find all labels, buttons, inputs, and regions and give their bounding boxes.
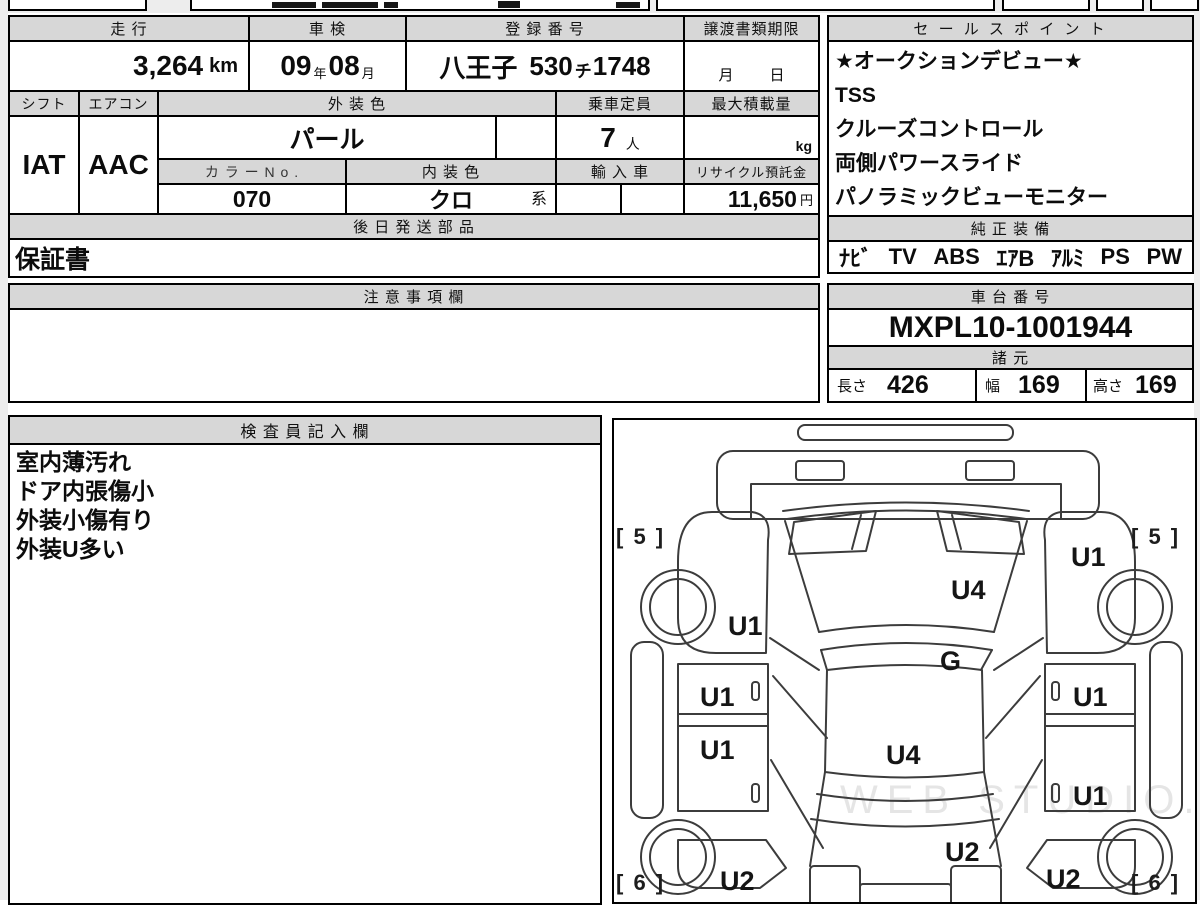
chassis-header: 車 台 番 号 xyxy=(827,283,1194,310)
deadline-day-label: 日 xyxy=(770,64,785,85)
specs-header: 諸 元 xyxy=(827,345,1194,370)
aircon-header: エアコン xyxy=(78,90,159,117)
shift-header: シフト xyxy=(8,90,80,117)
damage-mark-left-front-door: U1 xyxy=(700,684,735,711)
registration-header: 登 録 番 号 xyxy=(405,15,685,42)
chassis-value: MXPL10-1001944 xyxy=(827,308,1194,347)
recycle-deposit-number: 11,650 xyxy=(728,186,797,213)
cutoff-text-fragment xyxy=(384,2,398,8)
import-car-cell-2 xyxy=(620,183,685,215)
damage-mark-right-front-fender: U1 xyxy=(1071,544,1106,571)
interior-color-name: クロ xyxy=(429,183,473,215)
cutoff-cell xyxy=(190,0,650,11)
color-no-header: カ ラ ー N o . xyxy=(157,158,347,185)
spec-length-value: 426 xyxy=(887,371,929,400)
sales-point-box: ★オークションデビュー★ TSS クルーズコントロール 両側パワースライド パノ… xyxy=(827,40,1194,217)
damage-mark-left-rear-quarter: U2 xyxy=(720,868,755,895)
spec-width-value: 169 xyxy=(1018,371,1060,400)
sales-point-header: セ ー ル ス ポ イ ン ト xyxy=(827,15,1194,42)
cutoff-text-fragment xyxy=(322,2,378,8)
import-car-cell-1 xyxy=(555,183,622,215)
damage-mark-right-rear-quarter: U2 xyxy=(1046,866,1081,893)
notes-header: 注 意 事 項 欄 xyxy=(8,283,820,310)
corner-grade-front-left: [ 5 ] xyxy=(616,526,665,548)
equipment-item: ABS xyxy=(933,244,979,270)
damage-mark-rear-gate: U2 xyxy=(945,839,980,866)
spec-height-value: 169 xyxy=(1135,371,1177,400)
recycle-deposit-header: リサイクル預託金 xyxy=(683,158,820,185)
corner-grade-rear-right: [ 6 ] xyxy=(1131,872,1180,894)
interior-color-header: 内 装 色 xyxy=(345,158,557,185)
cutoff-cell xyxy=(8,0,147,11)
inspector-note-line: 外装U多い xyxy=(16,535,594,564)
sales-point-item: ★オークションデビュー★ xyxy=(835,45,1186,79)
sales-point-item: パノラミックビューモニター xyxy=(835,181,1186,215)
cutoff-text-fragment xyxy=(272,2,316,8)
inspection-month: 08 xyxy=(329,50,360,82)
damage-diagram: WEB STUDIO.PRO xyxy=(612,418,1197,904)
inspection-year: 09 xyxy=(280,50,311,82)
spec-height-label: 高さ xyxy=(1093,375,1123,396)
damage-mark-left-rear-door: U1 xyxy=(700,737,735,764)
registration-number: 1748 xyxy=(593,51,651,82)
spec-height: 高さ 169 xyxy=(1085,368,1194,403)
sales-point-item: TSS xyxy=(835,79,1186,113)
capacity-value: 7 人 xyxy=(555,115,685,160)
spec-width-label: 幅 xyxy=(985,375,1000,396)
cutoff-cell xyxy=(1002,0,1090,11)
inspector-note-line: ドア内張傷小 xyxy=(16,477,594,506)
max-load-unit: kg xyxy=(796,138,812,154)
damage-mark-right-rear-door: U1 xyxy=(1073,783,1108,810)
cutoff-text-fragment xyxy=(498,1,520,8)
spec-width: 幅 169 xyxy=(975,368,1087,403)
later-parts-header: 後 日 発 送 部 品 xyxy=(8,213,820,240)
damage-mark-right-front-door: U1 xyxy=(1073,684,1108,711)
exterior-color-value: パール xyxy=(157,115,497,160)
spec-length: 長さ 426 xyxy=(827,368,977,403)
exterior-color-sub-cell xyxy=(495,115,557,160)
max-load-value: kg xyxy=(683,115,820,160)
auction-sheet: { "colors": { "header_bg": "#d7d7d7", "b… xyxy=(0,0,1200,900)
deadline-month-label: 月 xyxy=(718,64,733,85)
equipment-item: PW xyxy=(1147,244,1182,270)
corner-grade-front-right: [ 5 ] xyxy=(1131,526,1180,548)
sales-point-item: クルーズコントロール xyxy=(835,113,1186,147)
damage-mark-windshield: G xyxy=(940,648,961,675)
aircon-value: AAC xyxy=(78,115,159,215)
interior-color-value: クロ 系 xyxy=(345,183,557,215)
mileage-unit: km xyxy=(209,55,238,78)
mileage-number: 3,264 xyxy=(133,50,203,82)
transfer-deadline-header: 譲渡書類期限 xyxy=(683,15,820,42)
capacity-header: 乗車定員 xyxy=(555,90,685,117)
inspector-notes-header: 検 査 員 記 入 欄 xyxy=(8,415,602,445)
left-margin xyxy=(0,0,8,900)
damage-mark-roof: U4 xyxy=(886,742,921,769)
damage-mark-hood: U4 xyxy=(951,577,986,604)
registration-kana: チ xyxy=(575,57,592,82)
equipment-item: PS xyxy=(1101,244,1130,270)
registration-value: 八王子 530 チ 1748 xyxy=(405,40,685,92)
equipment-item: TV xyxy=(889,244,917,270)
car-top-view-drawing xyxy=(614,420,1197,902)
equipment-item: ﾅﾋﾞ xyxy=(839,241,872,273)
capacity-number: 7 xyxy=(600,122,616,154)
registration-office: 八王子 xyxy=(439,48,517,85)
max-load-header: 最大積載量 xyxy=(683,90,820,117)
inspection-value: 09 年 08 月 xyxy=(248,40,407,92)
exterior-color-header: 外 装 色 xyxy=(157,90,557,117)
recycle-deposit-value: 11,650 円 xyxy=(683,183,820,215)
inspector-notes-box: 室内薄汚れ ドア内張傷小 外装小傷有り 外装U多い xyxy=(8,443,602,905)
inspection-month-unit: 月 xyxy=(362,63,375,82)
cutoff-cell xyxy=(1096,0,1144,11)
inspector-note-line: 外装小傷有り xyxy=(16,506,594,535)
color-no-value: 070 xyxy=(157,183,347,215)
import-car-header: 輸 入 車 xyxy=(555,158,685,185)
damage-mark-left-front-fender: U1 xyxy=(728,613,763,640)
mileage-value: 3,264 km xyxy=(8,40,250,92)
equipment-item: ｱﾙﾐ xyxy=(1051,241,1084,273)
capacity-unit: 人 xyxy=(626,134,640,154)
inspection-header: 車 検 xyxy=(248,15,407,42)
inspector-note-line: 室内薄汚れ xyxy=(16,448,594,477)
cutoff-cell xyxy=(1150,0,1199,11)
recycle-deposit-unit: 円 xyxy=(800,190,813,209)
later-parts-value: 保証書 xyxy=(8,238,820,278)
corner-grade-rear-left: [ 6 ] xyxy=(616,872,665,894)
mileage-header: 走 行 xyxy=(8,15,250,42)
notes-box xyxy=(8,308,820,403)
transfer-deadline-value: 月 日 xyxy=(683,40,820,92)
genuine-equipment-header: 純 正 装 備 xyxy=(827,215,1194,242)
sales-point-item: 両側パワースライド xyxy=(835,147,1186,181)
shift-value: IAT xyxy=(8,115,80,215)
inspection-year-unit: 年 xyxy=(313,63,326,82)
interior-color-suffix: 系 xyxy=(531,185,547,209)
registration-class: 530 xyxy=(529,51,572,82)
equipment-item: ｴｱB xyxy=(996,241,1034,273)
cutoff-text-fragment xyxy=(616,2,640,8)
later-parts-text: 保証書 xyxy=(15,240,90,276)
cutoff-cell xyxy=(656,0,995,11)
spec-length-label: 長さ xyxy=(837,375,867,396)
genuine-equipment-value: ﾅﾋﾞ TV ABS ｴｱB ｱﾙﾐ PS PW xyxy=(827,240,1194,274)
